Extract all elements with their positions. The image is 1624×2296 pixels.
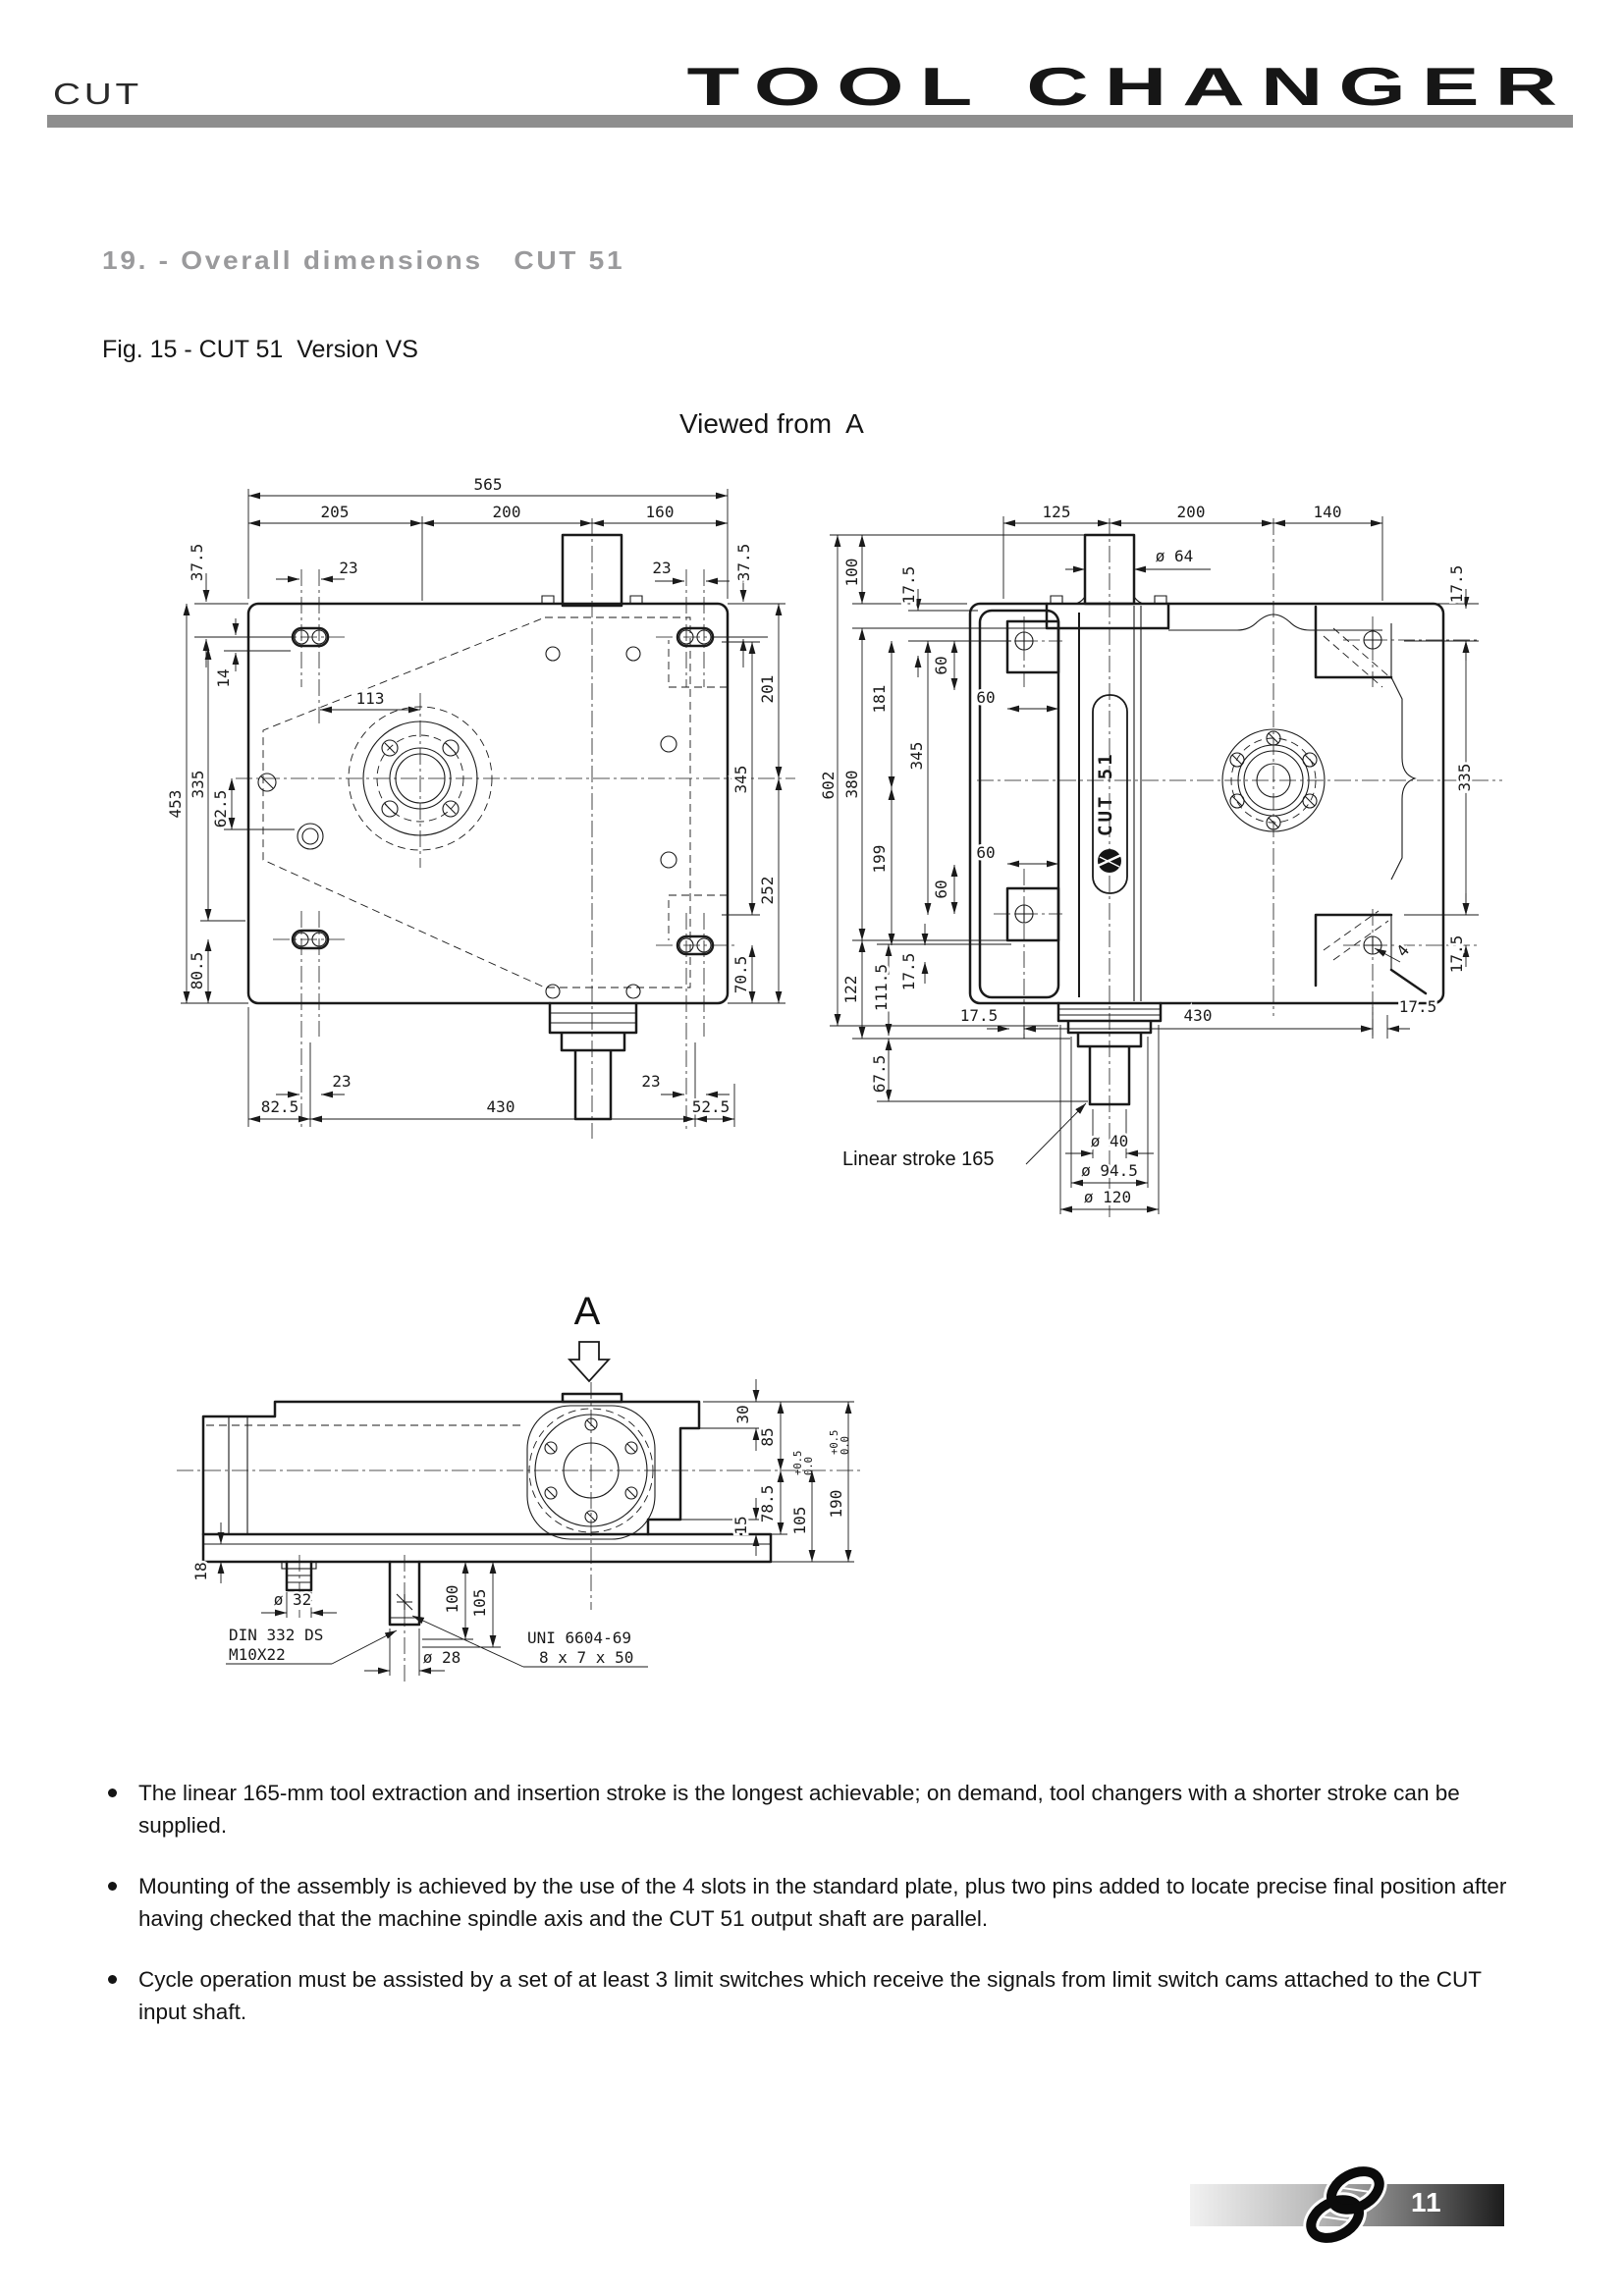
bullet-icon [108,1789,117,1797]
dim-label: 430 [487,1097,515,1116]
din-note-line1: DIN 332 DS [229,1626,323,1644]
dim-label: 23 [332,1072,351,1091]
dim-label: 113 [356,689,385,708]
dim-label: 602 [819,772,838,800]
front-dimensions [830,516,1479,1214]
dim-label: 190 [827,1490,845,1519]
dim-label: 252 [758,877,777,905]
dim-label: 60 [976,688,995,707]
dim-label: 380 [842,771,861,799]
dim-label: 335 [189,771,207,799]
dim-label: 453 [166,790,185,819]
dim-label: 60 [976,843,995,862]
dim-label: 4 [1392,941,1413,961]
dim-label: 140 [1314,503,1342,521]
note-text: Cycle operation must be assisted by a se… [138,1963,1520,2028]
plan-centerlines [236,518,795,1139]
dim-label: 100 [842,559,861,587]
note-text: The linear 165-mm tool extraction and in… [138,1777,1520,1842]
dim-label: 52.5 [692,1097,731,1116]
note-item: Mounting of the assembly is achieved by … [108,1870,1520,1935]
linear-stroke-note: Linear stroke 165 [842,1148,995,1170]
front-view: 125 200 140 ø 64 100 17.5 602 380 181 34… [819,503,1502,1217]
dim-label: 82.5 [261,1097,299,1116]
dim-label: ø 28 [423,1648,461,1667]
side-dim-labels: 30 85 15 78.5 105 +0.5 0.0 190 +0.5 0.0 … [191,1405,851,1667]
dim-label: 14 [214,668,233,687]
bullet-icon [108,1882,117,1891]
dim-label: ø 120 [1084,1188,1131,1206]
dim-label: 111.5 [872,964,891,1011]
brand-logo-icon [1288,2158,1406,2252]
note-text: Mounting of the assembly is achieved by … [138,1870,1520,1935]
dim-label: 17.5 [899,566,918,605]
dim-label: 80.5 [188,952,206,990]
dim-label: 100 [443,1585,461,1614]
notes-list: The linear 165-mm tool extraction and in… [108,1777,1520,2056]
plan-hidden-lines [263,617,728,988]
side-view: A [177,1290,864,1683]
dim-label: 17.5 [899,953,918,991]
dim-label: 78.5 [758,1485,777,1523]
dim-label: ø 64 [1156,547,1194,565]
dim-label: 17.5 [1447,565,1466,604]
dim-label: 23 [641,1072,660,1091]
plan-outline [248,535,728,1119]
view-direction-arrow-icon [569,1342,609,1381]
document-page: CUT TOOL CHANGER 19. - Overall dimension… [0,0,1624,2296]
plan-dimensions [181,489,785,1127]
dim-label: 122 [841,976,860,1004]
front-dim-labels: 125 200 140 ø 64 100 17.5 602 380 181 34… [819,503,1474,1206]
nameplate-text: CUT 51 [1095,751,1116,836]
note-item: Cycle operation must be assisted by a se… [108,1963,1520,2028]
dim-label: 125 [1043,503,1071,521]
dim-label: 430 [1184,1006,1213,1025]
dim-label: 199 [870,845,889,874]
dim-label: 345 [731,766,750,794]
dim-label: 105 [470,1589,489,1618]
dim-label: 37.5 [188,544,206,582]
uni-note-line1: UNI 6604-69 [527,1629,631,1647]
dim-label: 201 [758,675,777,704]
dim-label: 30 [733,1405,752,1423]
nameplate-logo-icon [1098,849,1121,873]
dim-label: ø 40 [1091,1132,1129,1150]
page-number: 11 [1411,2187,1442,2218]
front-centerlines [977,518,1502,1217]
dim-label: ø 32 [274,1590,312,1609]
dim-label: 17.5 [1447,935,1466,974]
dim-label: 200 [1177,503,1206,521]
din-note-line2: M10X22 [229,1645,286,1664]
side-details [203,1406,771,1618]
dim-label: 565 [474,475,503,494]
dim-label: 23 [652,559,671,577]
dim-label: 85 [758,1427,777,1446]
dim-label: ø 94.5 [1081,1161,1138,1180]
tolerance-label: 0.0 [803,1457,815,1475]
dim-label: 345 [907,742,926,771]
tolerance-label: 0.0 [839,1436,851,1455]
uni-note-line2: 8 x 7 x 50 [539,1648,633,1667]
plan-dim-labels: 565 205 200 160 23 23 37.5 37.5 14 113 4… [166,475,777,1116]
dim-label: 105 [790,1507,809,1535]
dim-label: 181 [870,685,889,714]
dim-label: 60 [932,656,950,674]
dim-label: 15 [731,1516,750,1534]
note-item: The linear 165-mm tool extraction and in… [108,1777,1520,1842]
dim-label: 17.5 [960,1006,999,1025]
dim-label: 160 [646,503,675,521]
dim-label: 200 [493,503,521,521]
bullet-icon [108,1975,117,1984]
dim-label: 18 [191,1562,210,1580]
dim-label: 67.5 [870,1055,889,1094]
dim-label: 205 [321,503,350,521]
view-direction-label: A [574,1290,601,1333]
plan-view: 565 205 200 160 23 23 37.5 37.5 14 113 4… [166,475,795,1139]
dim-label: 37.5 [734,544,753,582]
dim-label: 60 [932,880,950,898]
dim-label: 17.5 [1399,997,1437,1016]
dim-label: 23 [339,559,357,577]
dim-label: 62.5 [211,790,230,828]
dim-label: 335 [1455,764,1474,792]
front-details [1015,596,1415,1015]
dim-label: 70.5 [731,956,750,994]
